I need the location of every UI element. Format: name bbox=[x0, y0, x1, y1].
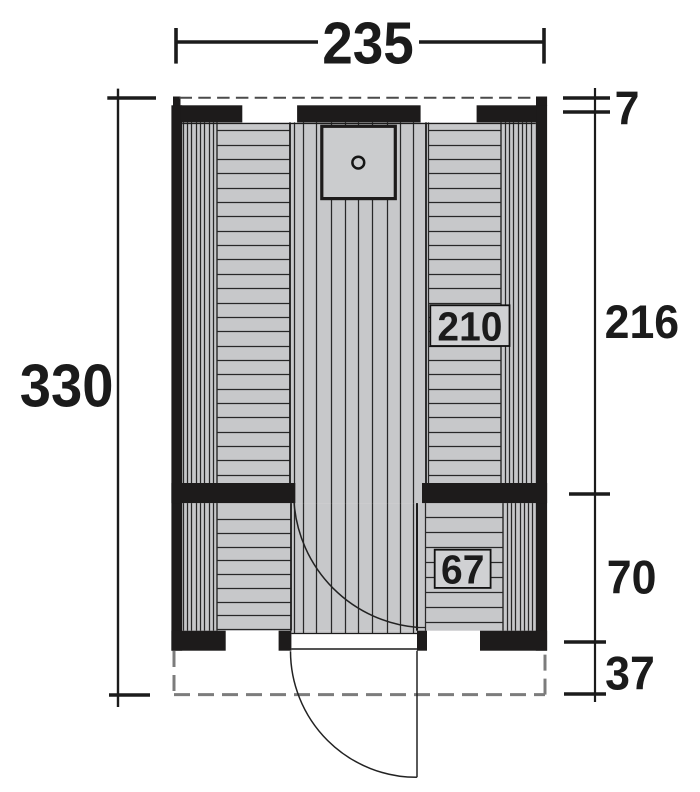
svg-text:210: 210 bbox=[437, 304, 502, 349]
svg-text:67: 67 bbox=[441, 548, 484, 593]
svg-text:216: 216 bbox=[605, 296, 679, 348]
svg-text:7: 7 bbox=[615, 82, 640, 134]
svg-text:70: 70 bbox=[607, 552, 657, 604]
svg-text:330: 330 bbox=[20, 353, 114, 420]
svg-text:37: 37 bbox=[605, 647, 655, 699]
svg-text:235: 235 bbox=[322, 10, 414, 76]
